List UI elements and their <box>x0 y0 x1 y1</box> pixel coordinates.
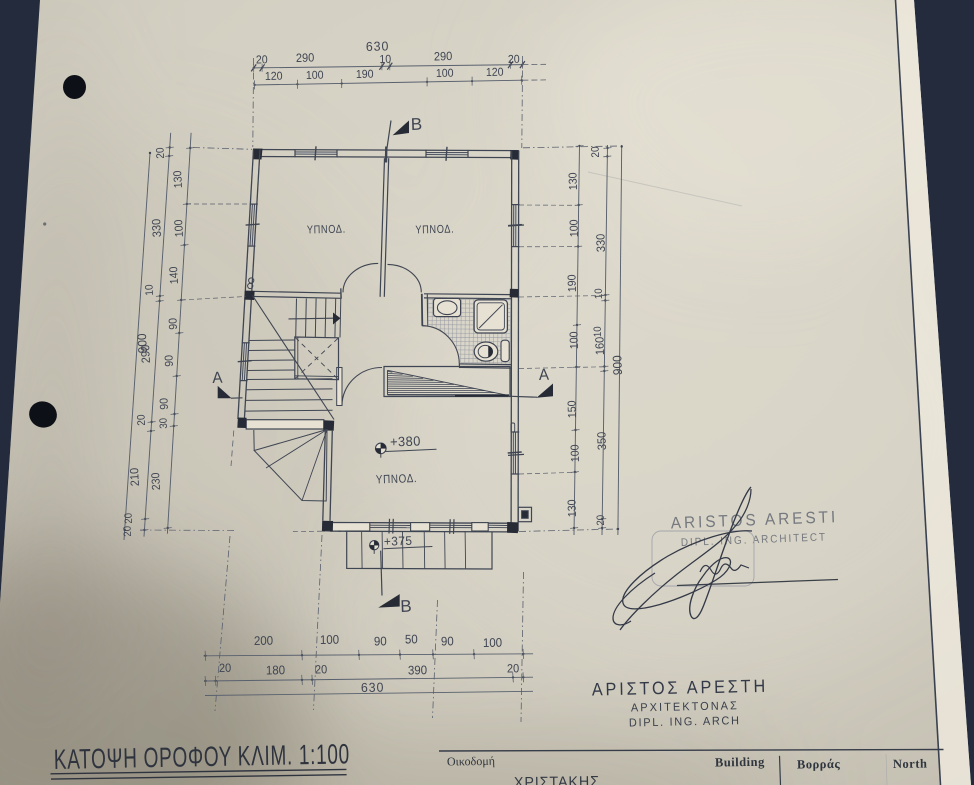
svg-text:Οικοδομή: Οικοδομή <box>447 754 495 769</box>
svg-text:ΥΠΝΟΔ.: ΥΠΝΟΔ. <box>415 224 454 237</box>
svg-text:20: 20 <box>595 514 607 526</box>
svg-text:20: 20 <box>507 663 519 676</box>
svg-text:160: 160 <box>594 337 607 356</box>
svg-text:20: 20 <box>315 664 327 677</box>
svg-text:230: 230 <box>150 472 163 490</box>
svg-text:100: 100 <box>483 635 503 650</box>
svg-text:30: 30 <box>158 417 170 429</box>
svg-text:+375: +375 <box>384 534 413 549</box>
svg-text:ΥΠΝΟΔ.: ΥΠΝΟΔ. <box>376 472 418 487</box>
svg-text:20: 20 <box>219 662 231 675</box>
svg-text:10: 10 <box>143 284 156 296</box>
svg-text:10: 10 <box>593 288 605 300</box>
svg-text:90: 90 <box>158 398 171 410</box>
svg-text:10: 10 <box>592 326 604 338</box>
svg-text:20: 20 <box>589 146 602 158</box>
svg-text:100: 100 <box>436 67 454 80</box>
svg-text:390: 390 <box>408 663 428 678</box>
svg-text:20: 20 <box>508 53 520 66</box>
svg-text:210: 210 <box>129 467 142 486</box>
svg-text:20: 20 <box>154 147 167 159</box>
svg-text:20: 20 <box>256 54 268 67</box>
svg-text:100: 100 <box>320 632 340 647</box>
svg-text:DIPL. ING. ARCH: DIPL. ING. ARCH <box>629 715 741 730</box>
svg-text:200: 200 <box>254 633 274 648</box>
svg-text:50: 50 <box>405 632 418 647</box>
svg-text:20: 20 <box>122 525 134 537</box>
svg-text:630: 630 <box>361 680 385 695</box>
svg-text:Βορράς: Βορράς <box>797 757 841 772</box>
svg-text:100: 100 <box>173 219 186 237</box>
svg-text:ΧΡΙΣΤΑΚΗΣ: ΧΡΙΣΤΑΚΗΣ <box>514 774 600 785</box>
svg-text:B: B <box>400 597 412 616</box>
svg-text:ΥΠΝΟΔ.: ΥΠΝΟΔ. <box>307 224 346 237</box>
svg-text:150: 150 <box>566 400 579 418</box>
svg-text:B: B <box>410 115 422 134</box>
svg-text:290: 290 <box>434 51 453 64</box>
svg-text:20: 20 <box>135 414 148 426</box>
svg-text:90: 90 <box>374 634 387 649</box>
svg-text:A: A <box>539 366 550 384</box>
svg-text:10: 10 <box>379 53 391 66</box>
svg-text:North: North <box>893 757 928 771</box>
svg-text:140: 140 <box>168 266 181 284</box>
svg-text:90: 90 <box>163 355 176 367</box>
svg-text:ΑΡΙΣΤΟΣ ΑΡΕΣΤΗ: ΑΡΙΣΤΟΣ ΑΡΕΣΤΗ <box>592 676 769 700</box>
svg-text:630: 630 <box>366 39 390 54</box>
svg-text:330: 330 <box>595 234 608 253</box>
svg-text:100: 100 <box>568 331 581 349</box>
svg-text:A: A <box>212 369 223 387</box>
svg-text:190: 190 <box>356 68 374 81</box>
svg-text:130: 130 <box>172 170 185 188</box>
svg-text:120: 120 <box>265 70 283 83</box>
svg-text:90: 90 <box>441 634 454 649</box>
svg-text:130: 130 <box>566 499 579 517</box>
svg-text:900: 900 <box>135 333 150 354</box>
svg-text:ΑΡΧΙΤΕΚΤΟΝΑΣ: ΑΡΧΙΤΕΚΤΟΝΑΣ <box>631 700 739 715</box>
svg-text:100: 100 <box>568 219 581 237</box>
svg-text:350: 350 <box>596 432 609 451</box>
svg-text:90: 90 <box>167 318 180 330</box>
svg-text:20: 20 <box>123 512 135 524</box>
svg-text:290: 290 <box>296 52 315 65</box>
svg-text:900: 900 <box>610 355 625 376</box>
svg-text:190: 190 <box>566 274 579 292</box>
svg-text:180: 180 <box>266 663 286 678</box>
svg-text:100: 100 <box>569 444 582 462</box>
svg-text:120: 120 <box>486 66 504 79</box>
svg-text:130: 130 <box>567 172 580 190</box>
svg-text:+380: +380 <box>390 433 421 449</box>
svg-text:100: 100 <box>306 69 324 82</box>
svg-text:Building: Building <box>715 755 765 770</box>
svg-text:330: 330 <box>151 218 164 237</box>
